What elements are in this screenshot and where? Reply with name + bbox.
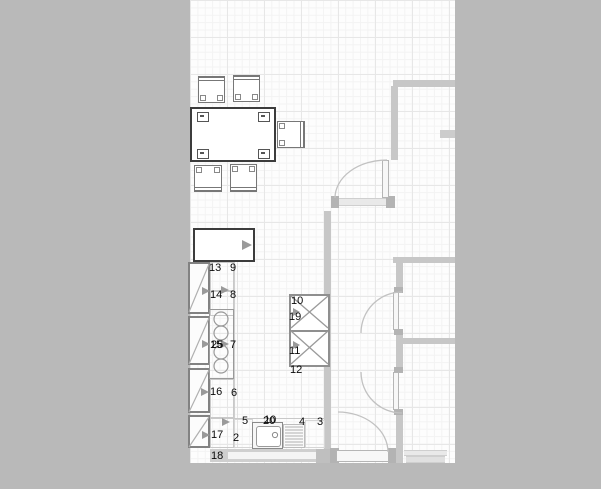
threshold-top-door [339, 198, 386, 206]
chair-right[interactable] [277, 121, 305, 148]
door-corridor2-leaf[interactable] [393, 372, 399, 410]
table-leg [197, 112, 209, 122]
item-label-10: 10 [291, 295, 303, 307]
plan-canvas: 1391481525716617218510204310191112 [0, 0, 601, 489]
item-label-12: 12 [290, 364, 302, 376]
tall-cabinet-2[interactable] [188, 316, 210, 365]
step-outside-lower [406, 456, 445, 463]
table-leg [258, 112, 270, 122]
chair-foot [279, 123, 285, 129]
chair-foot [217, 95, 223, 101]
door-post [331, 196, 339, 208]
item-label-17: 17 [211, 429, 223, 441]
door-top-leaf[interactable] [382, 160, 389, 198]
tall-cabinet-1[interactable] [188, 262, 210, 314]
chair-backrest [199, 77, 224, 81]
item-label-20: 20 [263, 415, 275, 427]
item-label-16: 16 [210, 386, 222, 398]
item-label-6: 6 [231, 387, 237, 399]
item-label-2: 2 [233, 432, 239, 444]
door-post [388, 448, 396, 463]
door-bottom-leaf[interactable] [336, 450, 389, 462]
item-label-8: 8 [230, 289, 236, 301]
chair-foot [249, 166, 255, 172]
item-label-18: 18 [211, 450, 223, 462]
item-label-25: 25 [211, 339, 223, 351]
island-divider [291, 330, 328, 332]
chair-backrest [195, 187, 221, 191]
window-bottom [228, 451, 316, 460]
item-label-3: 3 [317, 416, 323, 428]
chair-foot [214, 167, 220, 173]
wall-stub-right [440, 130, 455, 138]
chair-foot [252, 94, 258, 100]
wall-corridor-horizontal-2 [399, 338, 455, 344]
wall-corridor-bottom-stub [396, 448, 403, 463]
door-corridor1-leaf[interactable] [393, 292, 399, 330]
chair-foot [235, 94, 241, 100]
sink-basin [256, 426, 281, 447]
chair-backrest [300, 122, 304, 147]
item-label-7: 7 [230, 339, 236, 351]
chair-top-1[interactable] [198, 76, 225, 103]
chair-backrest [234, 76, 259, 80]
tall-cabinet-4[interactable] [188, 415, 210, 448]
wall-topright-horizontal [393, 80, 455, 87]
tall-cabinet-3[interactable] [188, 368, 210, 413]
table-leg [258, 149, 270, 159]
sideboard-counter[interactable] [193, 228, 255, 262]
chair-foot [196, 167, 202, 173]
item-label-9: 9 [230, 262, 236, 274]
chair-bottom-2[interactable] [230, 164, 257, 192]
item-label-13: 13 [209, 262, 221, 274]
item-label-19: 19 [289, 311, 301, 323]
table-leg [197, 149, 209, 159]
item-label-5: 5 [242, 415, 248, 427]
chair-foot [232, 166, 238, 172]
chair-bottom-1[interactable] [194, 165, 222, 192]
chair-top-2[interactable] [233, 75, 260, 102]
item-label-4: 4 [299, 416, 305, 428]
wall-corridor-v-c [396, 414, 403, 450]
chair-foot [200, 95, 206, 101]
item-label-11: 11 [289, 345, 300, 357]
item-label-14: 14 [210, 289, 222, 301]
wall-topright-vertical [391, 86, 398, 160]
chair-backrest [231, 187, 256, 191]
chair-foot [279, 140, 285, 146]
